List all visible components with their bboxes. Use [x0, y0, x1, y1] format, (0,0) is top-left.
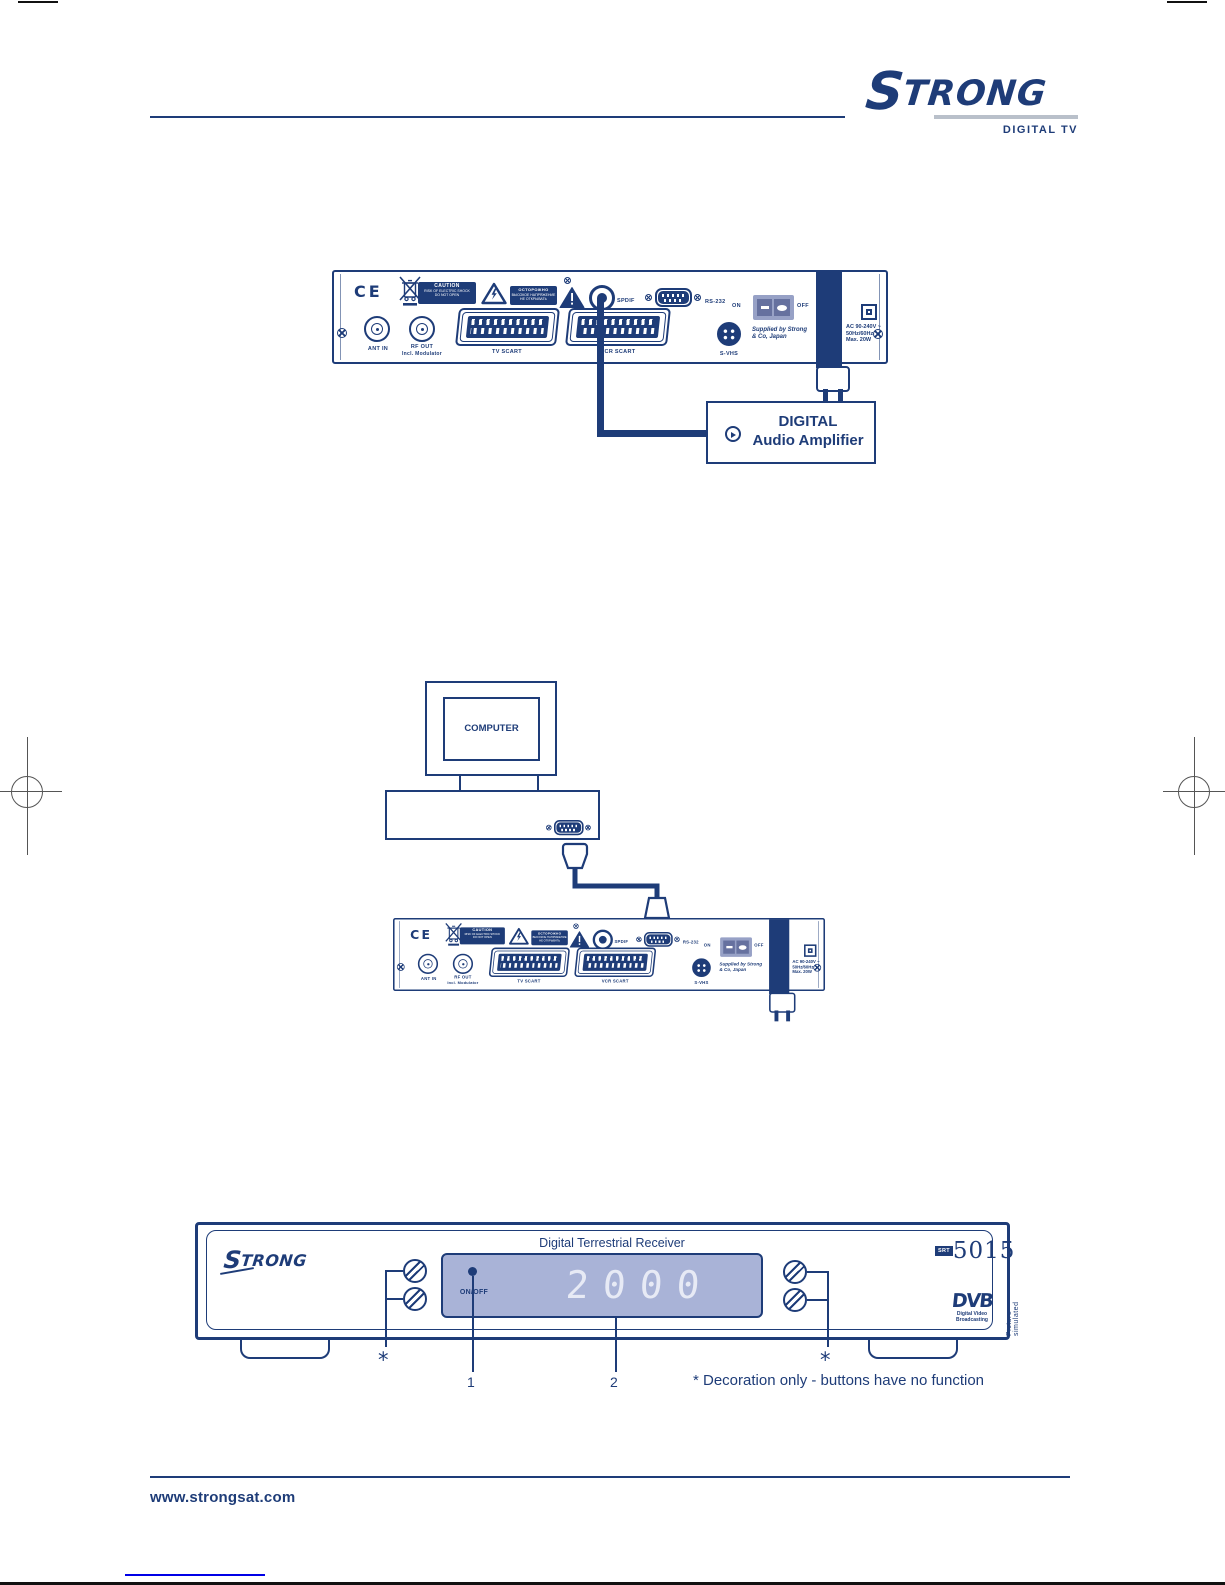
general-warning-icon	[559, 286, 585, 309]
logo-underline	[934, 115, 1078, 119]
callout-line	[472, 1276, 474, 1372]
screw-icon	[674, 937, 679, 942]
rating-line3: Max. 20W	[792, 970, 819, 975]
rf-out-line2: Incl. Modulator	[392, 351, 452, 358]
double-insulation-icon	[804, 944, 816, 956]
power-rating-text: AC 90-240V ~ 50Hz/60Hz Max. 20W	[846, 324, 881, 344]
power-switch-on-side	[723, 941, 735, 954]
model-number: SRT5015	[935, 1238, 1015, 1264]
receiver-rear-panel: CE CAUTION RISK OF ELECTRIC SHOCK DO NOT…	[332, 270, 888, 364]
rs232-label: RS-232	[683, 941, 699, 946]
callout-1: 1	[467, 1374, 475, 1390]
screw-icon	[573, 923, 578, 928]
dvb-sub2: Broadcasting	[946, 1317, 998, 1323]
rs232-connector	[645, 288, 703, 308]
receiver-rear-panel: CE CAUTION RISK OF ELECTRIC SHOCK DO NOT…	[393, 918, 825, 991]
screw-icon	[636, 937, 641, 942]
screw-icon	[337, 328, 347, 338]
svhs-label: S-VHS	[686, 981, 717, 986]
model-prefix: SRT	[935, 1246, 953, 1256]
amplifier-input-connector	[725, 426, 741, 442]
screw-icon	[694, 294, 701, 301]
power-rating-text: AC 90-240V ~ 50Hz/60Hz Max. 20W	[792, 960, 819, 975]
callout-line	[827, 1271, 829, 1347]
screw-icon	[564, 277, 571, 284]
supplier-line2: & Co, Japan	[719, 968, 762, 973]
amplifier-line1: DIGITAL	[744, 412, 872, 431]
front-strong-logo: STRONG	[224, 1246, 307, 1270]
supplier-line1: Supplied by Strong	[752, 327, 807, 334]
callout-line	[385, 1270, 387, 1347]
crop-mark	[1167, 1, 1207, 3]
strong-logo: STRONG	[866, 62, 1047, 114]
tv-scart-label: TV SCART	[498, 979, 560, 984]
vcr-scart-connector	[574, 948, 656, 978]
supplier-text: Supplied by Strong & Co, Japan	[719, 962, 762, 973]
power-cord	[769, 920, 789, 995]
caution2-line: НЕ ОТКРЫВАТЬ	[510, 297, 557, 301]
link-underline	[125, 1574, 265, 1576]
rear-panel-slot-2-wrap: CE CAUTION RISK OF ELECTRIC SHOCK DO NOT…	[393, 918, 945, 1048]
caution-label-2: ОСТОРОЖНО ВЫСОКОЕ НАПРЯЖЕНИЕ НЕ ОТКРЫВАТ…	[510, 286, 557, 305]
callout-line	[807, 1271, 828, 1273]
callout-line	[385, 1270, 403, 1272]
monitor-stand	[459, 776, 461, 790]
power-switch-off-side	[774, 299, 790, 316]
power-cord	[816, 272, 842, 368]
callout-2: 2	[610, 1374, 618, 1390]
dvb-logo: DVB Digital Video Broadcasting	[946, 1292, 998, 1323]
double-insulation-icon	[861, 304, 877, 320]
amplifier-line2: Audio Amplifier	[744, 431, 872, 450]
rf-out-label: RF OUT Incl. Modulator	[392, 344, 452, 357]
electric-shock-warning-icon	[509, 927, 529, 945]
electric-shock-warning-icon	[481, 282, 507, 305]
ce-mark: CE	[410, 927, 432, 942]
rf-out-connector	[409, 316, 435, 342]
header-rule	[150, 116, 845, 118]
front-panel-title: Digital Terrestrial Receiver	[447, 1236, 777, 1250]
ce-mark: CE	[354, 282, 383, 301]
ant-in-connector	[418, 954, 438, 974]
monitor-stand	[537, 776, 539, 790]
caution-label: CAUTION RISK OF ELECTRIC SHOCK DO NOT OP…	[418, 282, 476, 304]
spdif-label: SPDIF	[617, 298, 635, 305]
footer-rule	[150, 1476, 1070, 1478]
power-plug	[769, 993, 795, 1013]
rating-line3: Max. 20W	[846, 337, 881, 344]
vcr-scart-connector	[565, 308, 671, 346]
decoration-footnote: * Decoration only - buttons have no func…	[693, 1372, 984, 1389]
rs232-connector	[636, 932, 681, 948]
rating-line1: AC 90-240V ~	[792, 960, 819, 965]
rs232-pins	[658, 291, 689, 304]
supplier-line2: & Co, Japan	[752, 334, 807, 341]
callout-line	[615, 1318, 617, 1372]
power-plug	[816, 366, 850, 392]
vcr-scart-label: VCR SCART	[584, 979, 646, 984]
rf-out-line2: Incl. Modulator	[440, 981, 487, 986]
power-switch-off-side	[736, 941, 748, 954]
model-digits: 5015	[953, 1238, 1016, 1264]
manual-page: STRONG DIGITAL TV CE CAUTION RISK OF ELE…	[0, 0, 1225, 1585]
rf-out-label: RF OUT Incl. Modulator	[440, 975, 487, 985]
callout-star-right: *	[820, 1350, 831, 1371]
caution-label-2: ОСТОРОЖНО ВЫСОКОЕ НАПРЯЖЕНИЕ НЕ ОТКРЫВАТ…	[531, 930, 568, 945]
on-off-label: ON/OFF	[452, 1289, 496, 1296]
logo-tagline: DIGITAL TV	[1000, 124, 1078, 136]
decorative-button	[783, 1288, 807, 1312]
switch-on-label: ON	[704, 944, 711, 949]
strong-logo-rest: TRONG	[902, 77, 1049, 112]
svhs-connector	[717, 322, 741, 346]
caution-label: CAUTION RISK OF ELECTRIC SHOCK DO NOT OP…	[460, 927, 505, 944]
rf-out-connector	[453, 954, 473, 974]
decorative-button	[783, 1260, 807, 1284]
strong-logo-s: S	[863, 66, 906, 118]
crop-mark	[18, 1, 58, 3]
callout-line	[807, 1299, 828, 1301]
power-switch-on-side	[757, 299, 772, 316]
receiver-foot	[240, 1340, 330, 1359]
tv-scart-connector	[455, 308, 560, 346]
monitor-label: COMPUTER	[443, 723, 540, 734]
general-warning-icon	[569, 930, 589, 948]
ant-in-connector	[364, 316, 390, 342]
power-switch	[753, 295, 794, 320]
tv-scart-label: TV SCART	[467, 349, 547, 356]
svhs-label: S-VHS	[709, 351, 749, 358]
rs232-label: RS-232	[705, 299, 725, 306]
website-url: www.strongsat.com	[150, 1489, 295, 1506]
computer-serial-port	[546, 820, 592, 836]
switch-off-label: OFF	[797, 303, 809, 310]
decorative-button	[403, 1287, 427, 1311]
callout-line	[385, 1298, 403, 1300]
spdif-cable-vertical	[597, 298, 604, 434]
power-switch	[720, 937, 752, 956]
spdif-label: SPDIF	[614, 940, 628, 945]
rear-panel-slot-2: CE CAUTION RISK OF ELECTRIC SHOCK DO NOT…	[393, 918, 822, 1019]
caution2-line: НЕ ОТКРЫВАТЬ	[531, 939, 568, 942]
vcr-scart-label: VCR SCART	[578, 349, 658, 356]
picture-simulated-note: Picture simulated	[1006, 1276, 1020, 1336]
receiver-foot	[868, 1340, 958, 1359]
screw-icon	[645, 294, 652, 301]
tv-scart-connector	[489, 948, 571, 978]
amplifier-label: DIGITAL Audio Amplifier	[744, 412, 872, 450]
rating-line1: AC 90-240V ~	[846, 324, 881, 331]
dvb-letters: DVB	[945, 1292, 999, 1311]
screw-icon	[397, 963, 405, 971]
rear-panel-slot-1: CE CAUTION RISK OF ELECTRIC SHOCK DO NOT…	[332, 270, 884, 360]
supplier-text: Supplied by Strong & Co, Japan	[752, 327, 807, 341]
svhs-connector	[692, 958, 711, 977]
switch-off-label: OFF	[754, 944, 763, 949]
standby-led	[468, 1267, 477, 1276]
switch-on-label: ON	[732, 303, 741, 310]
decorative-button	[403, 1259, 427, 1283]
channel-display: 2000	[565, 1266, 715, 1304]
caution-line: DO NOT OPEN	[460, 936, 505, 939]
caution-line: DO NOT OPEN	[418, 293, 476, 297]
callout-star-left: *	[378, 1350, 389, 1371]
